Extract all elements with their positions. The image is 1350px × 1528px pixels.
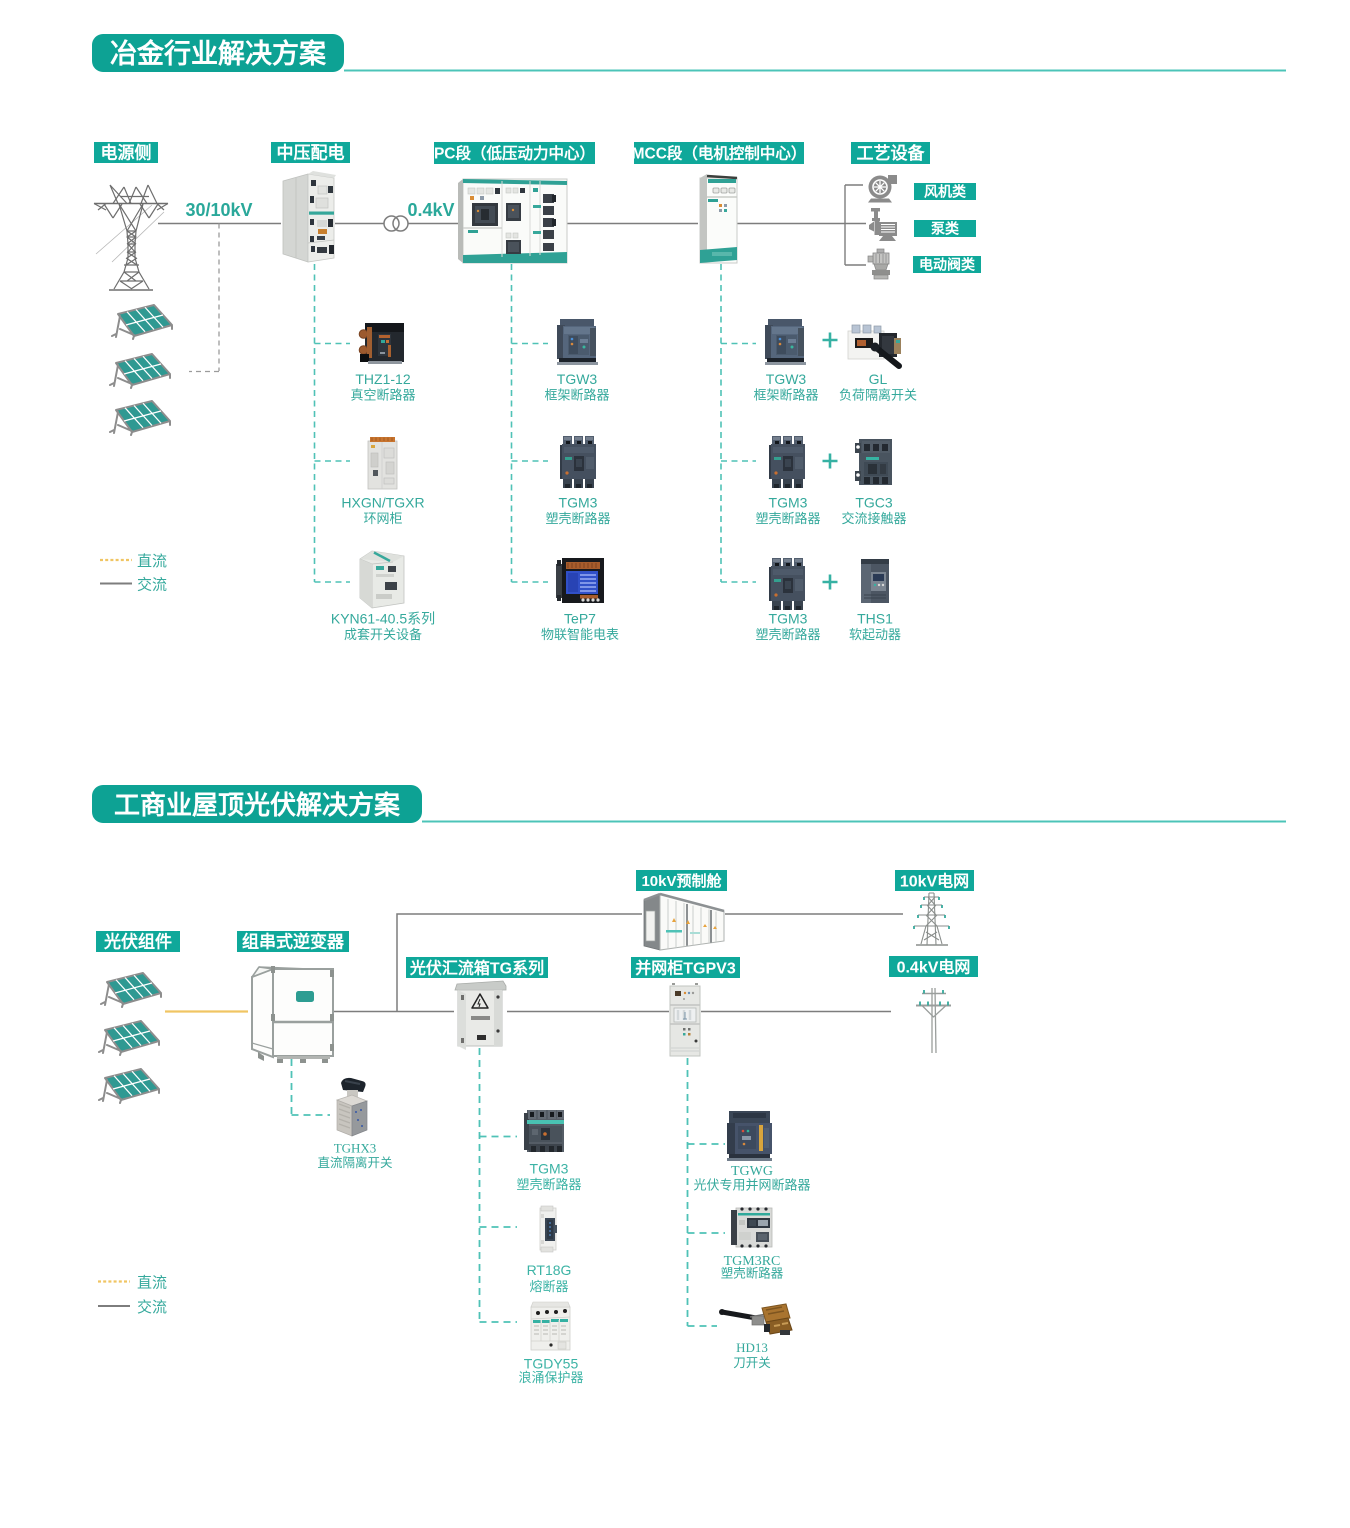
svg-text:RT18G: RT18G (527, 1262, 572, 1278)
svg-text:工艺设备: 工艺设备 (857, 143, 926, 163)
svg-text:PC段（低压动力中心）: PC段（低压动力中心） (434, 144, 595, 163)
svg-text:组串式逆变器: 组串式逆变器 (242, 932, 345, 952)
svg-text:TGW3: TGW3 (557, 371, 598, 387)
svg-text:0.4kV电网: 0.4kV电网 (897, 958, 971, 977)
svg-text:塑壳断路器: 塑壳断路器 (721, 1266, 784, 1281)
svg-text:交流接触器: 交流接触器 (841, 511, 906, 526)
svg-text:电源侧: 电源侧 (101, 143, 152, 163)
svg-text:THZ1-12: THZ1-12 (355, 371, 410, 387)
svg-text:HXGN/TGXR: HXGN/TGXR (341, 495, 424, 511)
svg-text:直流: 直流 (137, 553, 167, 570)
svg-text:电动阀类: 电动阀类 (919, 257, 976, 273)
svg-text:交流: 交流 (137, 576, 167, 594)
svg-text:THS1: THS1 (857, 611, 893, 627)
svg-text:TGM3: TGM3 (530, 1161, 569, 1177)
svg-text:塑壳断路器: 塑壳断路器 (516, 1177, 581, 1192)
svg-text:环网柜: 环网柜 (363, 511, 402, 526)
svg-text:刀开关: 刀开关 (733, 1356, 771, 1370)
svg-text:工商业屋顶光伏解决方案: 工商业屋顶光伏解决方案 (114, 790, 401, 820)
svg-text:熔断器: 熔断器 (529, 1279, 568, 1294)
svg-text:HD13: HD13 (736, 1340, 768, 1355)
svg-text:0.4kV: 0.4kV (407, 200, 454, 220)
svg-text:TGC3: TGC3 (855, 495, 893, 511)
svg-text:光伏汇流箱TG系列: 光伏汇流箱TG系列 (409, 959, 544, 978)
svg-text:TGM3: TGM3 (559, 495, 598, 511)
svg-text:风机类: 风机类 (924, 184, 967, 200)
svg-text:泵类: 泵类 (931, 221, 960, 237)
svg-text:负荷隔离开关: 负荷隔离开关 (839, 388, 917, 403)
svg-text:TGW3: TGW3 (766, 371, 807, 387)
svg-text:直流隔离开关: 直流隔离开关 (317, 1155, 392, 1170)
svg-text:交流: 交流 (137, 1298, 167, 1316)
svg-text:MCC段（电机控制中心）: MCC段（电机控制中心） (632, 144, 807, 163)
svg-text:光伏组件: 光伏组件 (103, 932, 172, 952)
svg-text:TGM3: TGM3 (769, 495, 808, 511)
svg-text:成套开关设备: 成套开关设备 (344, 627, 422, 642)
svg-text:中压配电: 中压配电 (277, 143, 345, 163)
svg-text:真空断路器: 真空断路器 (350, 388, 415, 403)
svg-text:10kV电网: 10kV电网 (900, 872, 969, 891)
svg-text:并网柜TGPV3: 并网柜TGPV3 (635, 959, 736, 978)
svg-text:TeP7: TeP7 (564, 611, 596, 627)
svg-text:30/10kV: 30/10kV (185, 200, 252, 220)
svg-text:物联智能电表: 物联智能电表 (541, 627, 619, 642)
svg-text:TGM3: TGM3 (769, 611, 808, 627)
svg-text:框架断路器: 框架断路器 (753, 388, 818, 403)
svg-text:框架断路器: 框架断路器 (544, 388, 609, 403)
svg-text:KYN61-40.5系列: KYN61-40.5系列 (331, 611, 435, 627)
svg-text:浪涌保护器: 浪涌保护器 (518, 1370, 583, 1385)
svg-text:GL: GL (869, 371, 888, 387)
svg-text:10kV预制舱: 10kV预制舱 (641, 872, 722, 890)
svg-text:光伏专用并网断路器: 光伏专用并网断路器 (693, 1178, 810, 1193)
svg-text:TGHX3: TGHX3 (334, 1141, 377, 1156)
svg-text:塑壳断路器: 塑壳断路器 (755, 627, 820, 642)
svg-text:软起动器: 软起动器 (849, 627, 901, 642)
svg-text:冶金行业解决方案: 冶金行业解决方案 (110, 38, 327, 69)
svg-text:塑壳断路器: 塑壳断路器 (545, 511, 610, 526)
svg-text:塑壳断路器: 塑壳断路器 (755, 511, 820, 526)
svg-text:直流: 直流 (137, 1275, 167, 1292)
